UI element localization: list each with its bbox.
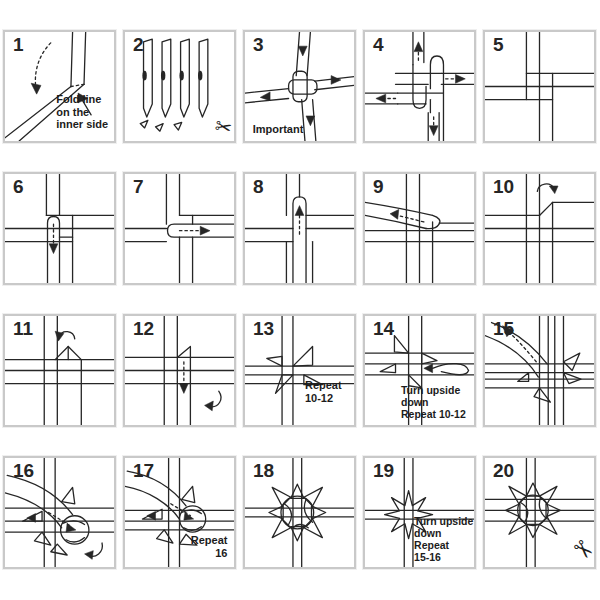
step-panel-5: 5 xyxy=(483,30,596,143)
step-4-number: 4 xyxy=(373,34,384,56)
step-7-number: 7 xyxy=(133,176,144,198)
step-2-number: 2 xyxy=(133,34,144,56)
step-8-number: 8 xyxy=(253,176,264,198)
step-15-number: 15 xyxy=(493,318,514,340)
step-18-number: 18 xyxy=(253,460,274,482)
step-17-number: 17 xyxy=(133,460,154,482)
step-panel-9: 9 xyxy=(363,172,476,285)
step-panel-13: 13 Repeat 10-12 xyxy=(243,314,356,427)
turn-over-arrow xyxy=(433,364,469,375)
step-panel-6: 6 xyxy=(3,172,116,285)
instruction-sheet: 1 Fold line on the inner side 2 ✂ xyxy=(0,0,600,600)
step-panel-1: 1 Fold line on the inner side xyxy=(3,30,116,143)
step-17-caption: Repeat 16 xyxy=(182,534,228,559)
step-11-number: 11 xyxy=(13,318,33,340)
step-panel-18: 18 xyxy=(243,456,356,569)
step-10-number: 10 xyxy=(493,176,514,198)
step-panel-10: 10 xyxy=(483,172,596,285)
step-1-caption: Fold line on the inner side xyxy=(56,93,108,131)
star-point xyxy=(293,347,313,367)
step-14-number: 14 xyxy=(373,318,394,340)
step-panel-15: 15 xyxy=(483,314,596,427)
step-3-caption: Important xyxy=(253,123,304,136)
step-12-number: 12 xyxy=(133,318,154,340)
paper-scrap xyxy=(140,120,148,128)
step-13-number: 13 xyxy=(253,318,274,340)
step-6-number: 6 xyxy=(13,176,24,198)
star-point xyxy=(563,353,579,370)
step-panel-16: 16 xyxy=(3,456,116,569)
step-9-number: 9 xyxy=(373,176,384,198)
step-5-number: 5 xyxy=(493,34,504,56)
star-center xyxy=(281,496,314,529)
fold-direction-arrow xyxy=(35,43,50,84)
step-panel-17: 17 Repeat 16 xyxy=(123,456,236,569)
step-panel-4: 4 xyxy=(363,30,476,143)
step-panel-20: 20 ✂ xyxy=(483,456,596,569)
step-19-caption: Turn upside down Repeat 15-16 xyxy=(414,515,473,563)
step-3-number: 3 xyxy=(253,34,264,56)
step-panel-7: 7 xyxy=(123,172,236,285)
step-1-number: 1 xyxy=(13,34,24,56)
step-panel-2: 2 ✂ xyxy=(123,30,236,143)
step-20-number: 20 xyxy=(493,460,514,482)
step-panel-14: 14 Turn upside down Repeat 10-12 xyxy=(363,314,476,427)
direction-arrow xyxy=(298,46,307,56)
step-16-number: 16 xyxy=(13,460,34,482)
step-panel-3: 3 Important xyxy=(243,30,356,143)
step-14-caption: Turn upside down Repeat 10-12 xyxy=(401,384,466,420)
star-point xyxy=(304,487,323,506)
star-point xyxy=(394,336,408,353)
step-panel-8: 8 xyxy=(243,172,356,285)
step-13-caption: Repeat 10-12 xyxy=(305,379,342,404)
fold-notch-mark xyxy=(142,71,146,81)
step-19-number: 19 xyxy=(373,460,394,482)
step-panel-19: 19 Turn upside down Repeat 15-16 xyxy=(363,456,476,569)
step-panel-11: 11 xyxy=(3,314,116,427)
star-point xyxy=(540,486,557,503)
step-panel-12: 12 xyxy=(123,314,236,427)
